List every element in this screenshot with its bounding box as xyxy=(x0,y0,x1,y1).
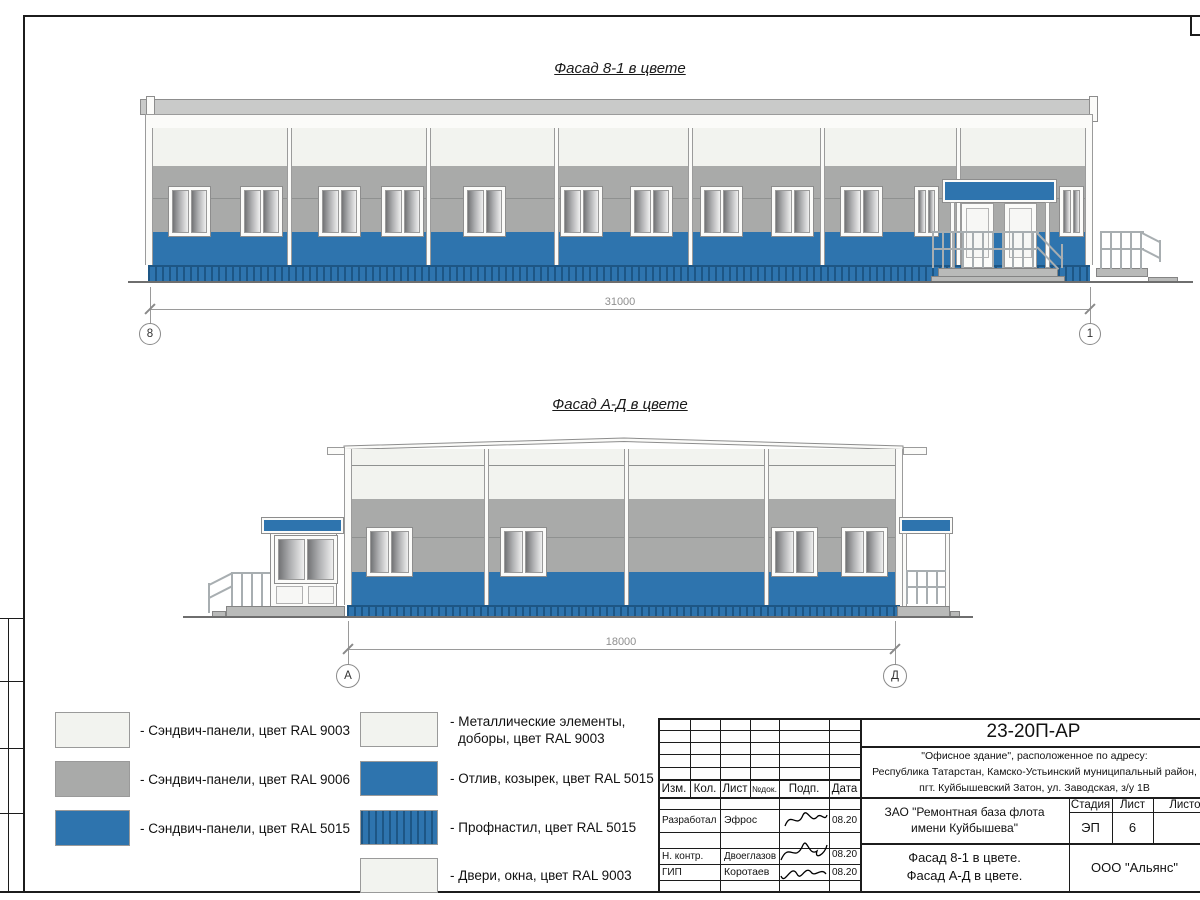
pilaster xyxy=(484,449,489,605)
legend-label: - Сэндвич-панели, цвет RAL 5015 xyxy=(140,810,360,846)
window xyxy=(560,186,603,237)
entrance-canopy xyxy=(943,180,1056,202)
pilaster xyxy=(820,128,825,265)
row-date: 08.20 xyxy=(830,846,859,862)
window xyxy=(630,186,673,237)
window xyxy=(240,186,283,237)
window xyxy=(318,186,361,237)
axis-marker: А xyxy=(336,664,360,688)
roof-parapet xyxy=(140,99,1097,115)
legend-swatch xyxy=(360,858,438,893)
roof-ledge xyxy=(327,447,345,455)
corner-strip xyxy=(344,449,352,605)
dimension-label: 18000 xyxy=(561,636,681,648)
col-header-data: Дата xyxy=(829,780,860,797)
railing xyxy=(932,248,1037,250)
pilaster xyxy=(554,128,559,265)
legend-swatch xyxy=(55,810,130,846)
legend-swatch xyxy=(55,761,130,797)
row-date: 08.20 xyxy=(830,864,859,880)
fascia-band xyxy=(145,114,1093,129)
pilaster xyxy=(624,449,629,605)
window xyxy=(771,186,814,237)
window-narrow xyxy=(914,186,939,237)
legend-label: - Двери, окна, цвет RAL 9003 xyxy=(450,858,690,893)
axis-marker: 8 xyxy=(139,323,161,345)
stage-label: Стадия xyxy=(1069,798,1112,812)
doc-number: 23-20П-АР xyxy=(860,718,1200,746)
stair-handrail xyxy=(1142,248,1161,259)
row-name: Эфрос xyxy=(722,812,778,828)
legend-swatch xyxy=(360,761,438,796)
corner-stamp-box xyxy=(1190,15,1200,36)
sheets-label: Листов xyxy=(1153,798,1200,812)
window xyxy=(168,186,211,237)
pilaster xyxy=(688,128,693,265)
row-name: Коротаев xyxy=(722,864,779,880)
stage-value: ЭП xyxy=(1069,812,1112,843)
legend-label: - Металлические элементы, xyxy=(450,712,680,730)
railing xyxy=(906,586,946,588)
col-header-izm: Изм. xyxy=(658,780,690,797)
legend-swatch xyxy=(360,810,438,845)
stair-handrail xyxy=(209,585,233,599)
pilaster xyxy=(287,128,292,265)
row-date: 08.20 xyxy=(830,812,859,828)
corner-strip xyxy=(1085,128,1093,265)
railing xyxy=(231,572,270,606)
window xyxy=(366,527,413,577)
ramp-handrail xyxy=(1061,244,1063,268)
org-name: ООО "Альянс" xyxy=(1069,843,1200,891)
window xyxy=(841,527,888,577)
client-name: ЗАО "Ремонтная база флота имени Куйбышев… xyxy=(860,797,1069,843)
signature xyxy=(778,860,830,886)
legend-label: доборы, цвет RAL 9003 xyxy=(458,729,688,747)
row-role: ГИП xyxy=(660,864,720,880)
axis-marker: 1 xyxy=(1079,323,1101,345)
col-header-list: Лист xyxy=(720,780,750,797)
pilaster xyxy=(426,128,431,265)
legend-label: - Профнастил, цвет RAL 5015 xyxy=(450,810,690,845)
roof-ledge xyxy=(903,447,927,455)
porch-canopy xyxy=(900,518,952,533)
pilaster xyxy=(764,449,769,605)
window xyxy=(771,527,818,577)
project-address: "Офисное здание", расположенное по адрес… xyxy=(862,746,1200,797)
col-header-kol: Кол. xyxy=(690,780,720,797)
window-narrow xyxy=(1059,186,1084,237)
vestibule-panel xyxy=(308,586,334,604)
stair-handrail xyxy=(1142,232,1161,243)
row-role: Разработал xyxy=(660,812,720,828)
window xyxy=(500,527,547,577)
signature xyxy=(782,806,830,834)
legend-label: - Сэндвич-панели, цвет RAL 9006 xyxy=(140,761,360,797)
axis-marker: Д xyxy=(883,664,907,688)
row-role: Н. контр. xyxy=(660,848,720,864)
vestibule-glazing xyxy=(274,535,338,584)
legend-label: - Сэндвич-панели, цвет RAL 9003 xyxy=(140,712,360,748)
row-name: Двоеглазов xyxy=(722,848,779,864)
stair-handrail xyxy=(208,583,210,613)
sheet-subject: Фасад 8-1 в цвете. Фасад А-Д в цвете. xyxy=(860,843,1069,891)
window xyxy=(381,186,424,237)
ground-line xyxy=(128,281,1193,283)
col-header-ndok: №док. xyxy=(750,780,779,797)
sheet-value: 6 xyxy=(1112,812,1153,843)
window xyxy=(463,186,506,237)
stair-handrail xyxy=(1159,240,1161,262)
dimension-label: 31000 xyxy=(560,296,680,308)
vestibule-canopy xyxy=(262,518,343,533)
legend-swatch xyxy=(55,712,130,748)
facade-a-d-title: Фасад А-Д в цвете xyxy=(400,396,840,413)
legend-label: - Отлив, козырек, цвет RAL 5015 xyxy=(450,761,690,796)
stair-handrail xyxy=(209,572,233,586)
dimension-line xyxy=(348,649,895,650)
stair-railing xyxy=(1100,248,1144,250)
col-header-podp: Подп. xyxy=(779,780,829,797)
sheet-label: Лист xyxy=(1112,798,1153,812)
drawing-sheet: Фасад 8-1 в цвете xyxy=(0,0,1200,900)
ground-line xyxy=(183,616,973,618)
side-steps xyxy=(1096,268,1148,277)
window xyxy=(700,186,743,237)
corner-strip xyxy=(145,128,153,265)
vestibule-panel xyxy=(276,586,303,604)
window xyxy=(840,186,883,237)
dimension-line xyxy=(150,309,1090,310)
legend-swatch xyxy=(360,712,438,747)
stair-railing xyxy=(1100,231,1144,269)
facade-8-1-title: Фасад 8-1 в цвете xyxy=(400,60,840,77)
